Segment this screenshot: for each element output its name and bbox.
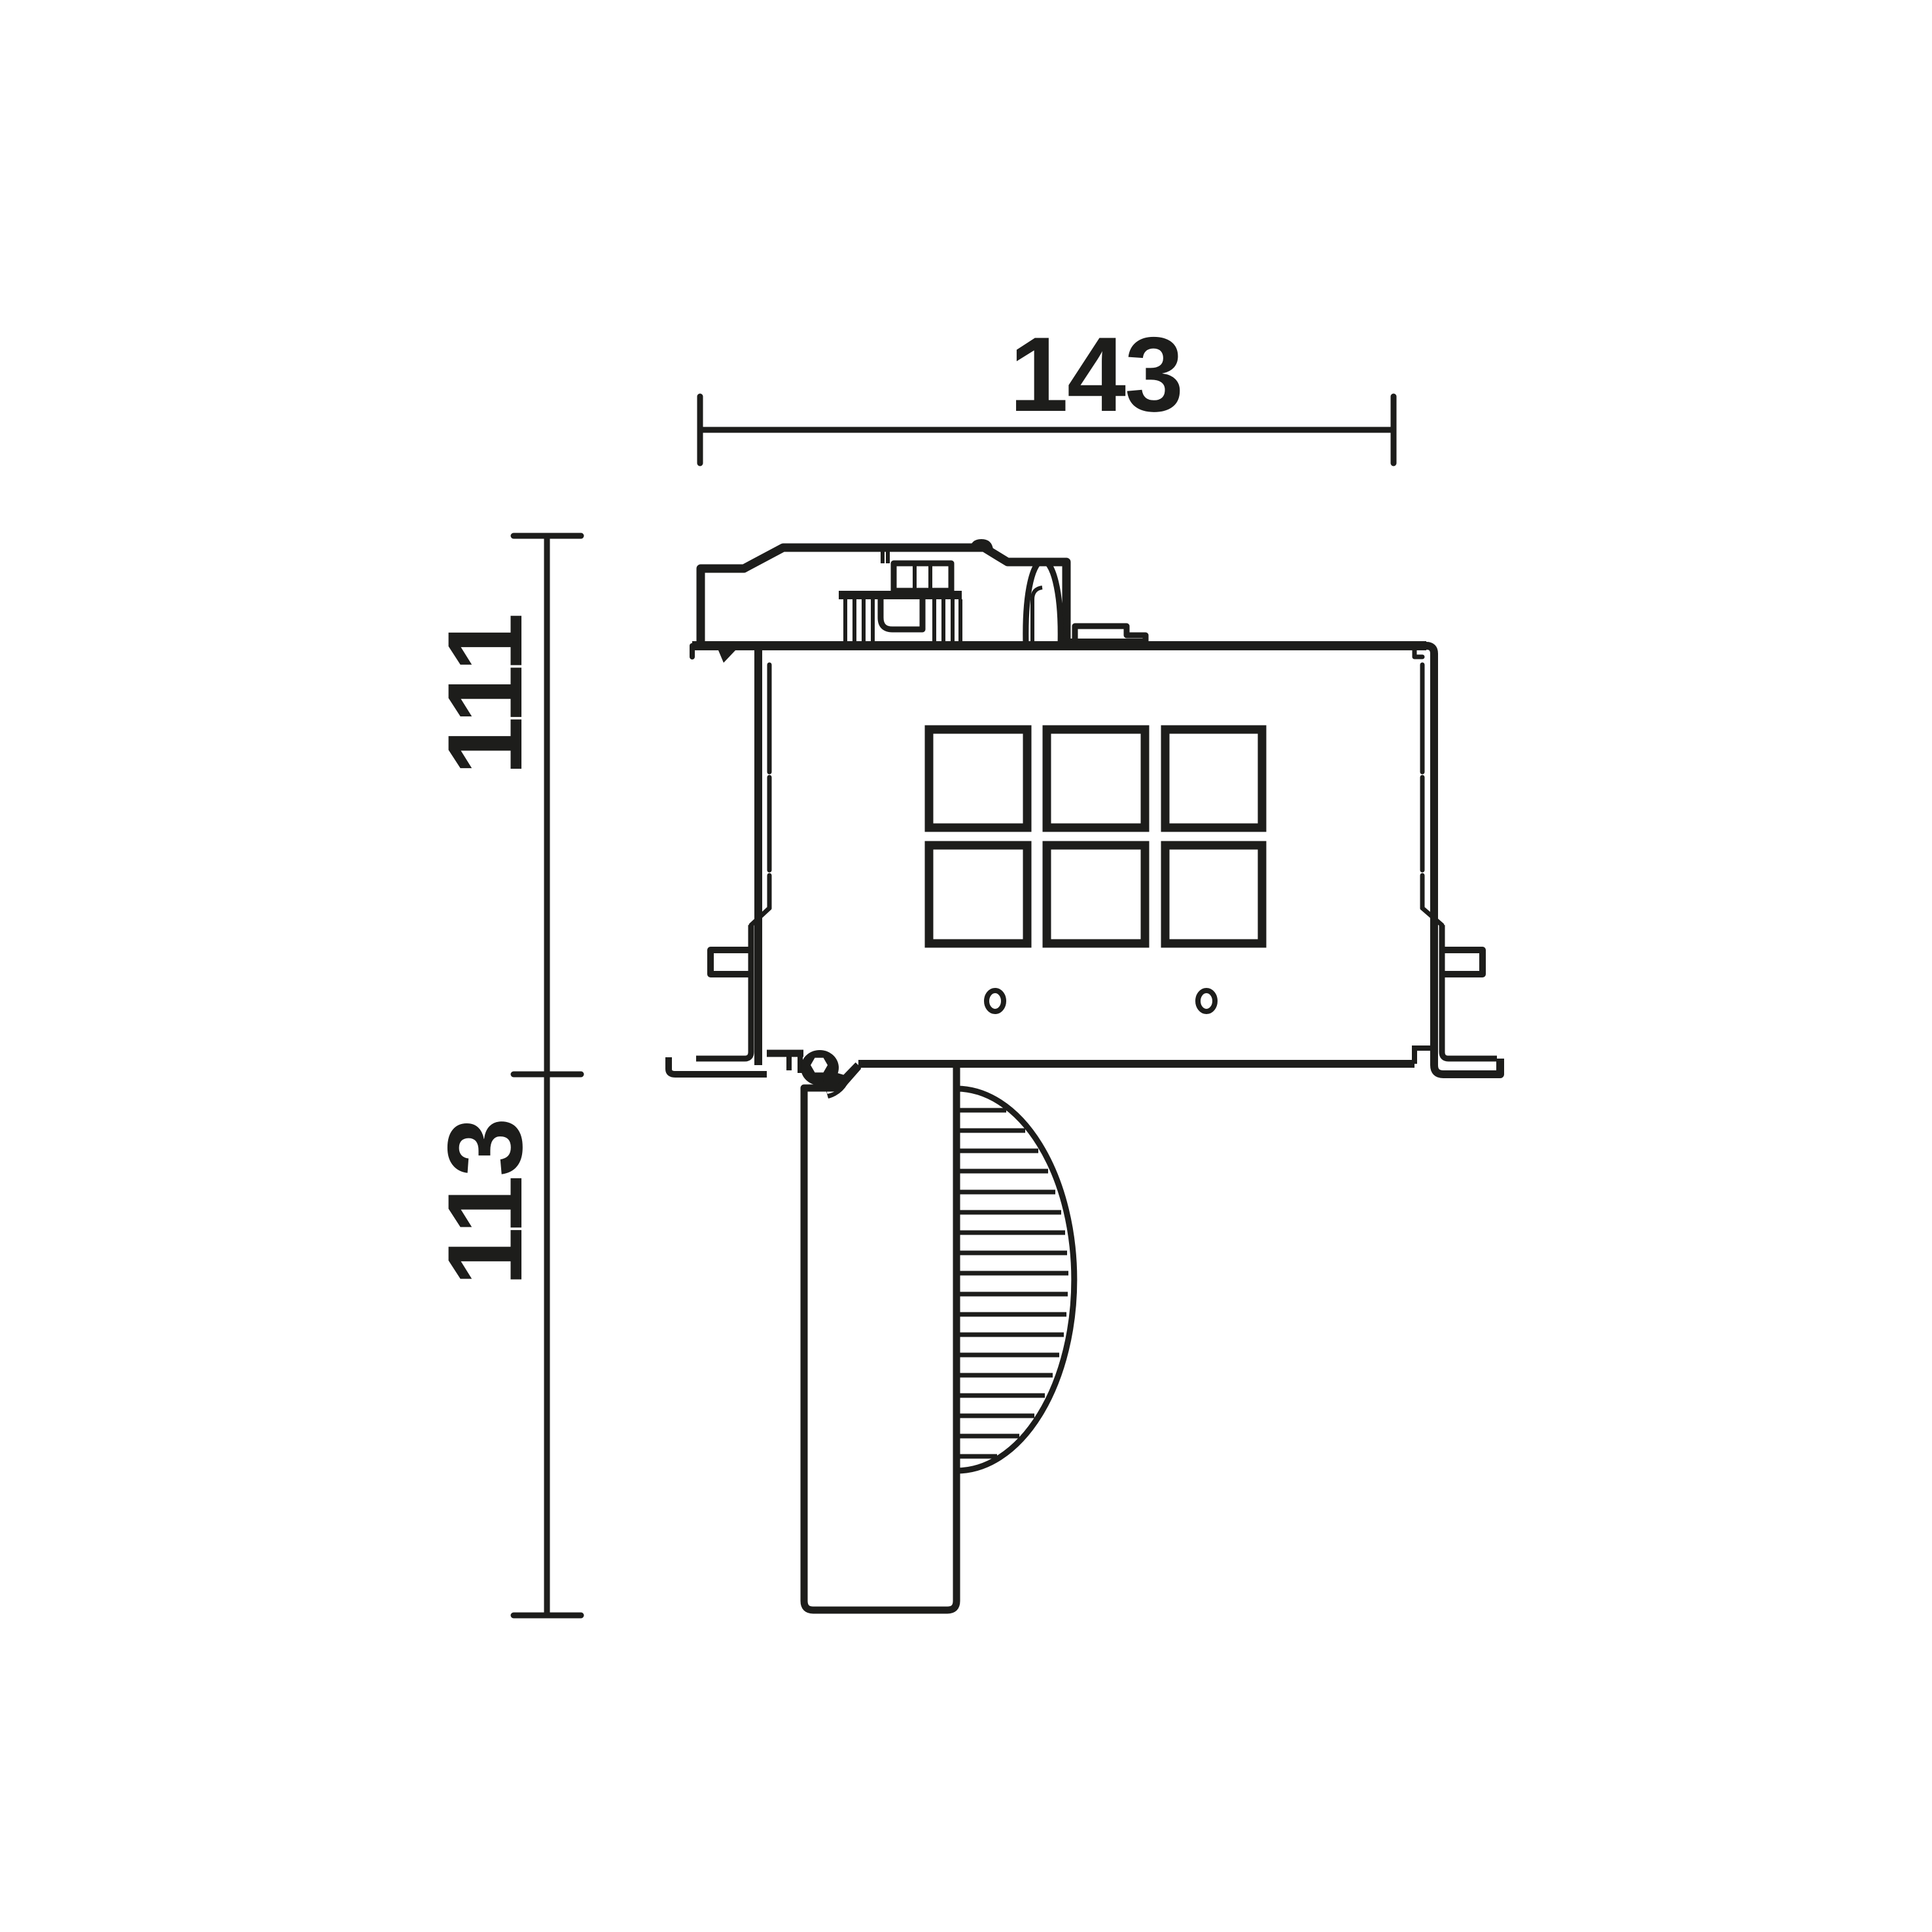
cable-clamp-bump — [970, 539, 993, 550]
vent-square — [1047, 845, 1145, 943]
technical-drawing-page: 143 111 113 — [0, 0, 1932, 1932]
right-wall-outer — [1426, 646, 1500, 1074]
dimension-label-width: 143 — [1010, 315, 1182, 434]
trim-right-step — [1414, 1048, 1430, 1064]
terminal-block — [894, 563, 951, 591]
technical-drawing: 143 111 113 — [0, 0, 1932, 1932]
louver-lens — [957, 1089, 1074, 1471]
lamp-holder-channel — [881, 599, 922, 629]
right-clamp-bracket — [1442, 950, 1483, 974]
dimension-width: 143 — [700, 315, 1394, 463]
vent-square — [1165, 729, 1262, 828]
dimension-label-head-projection: 113 — [426, 1119, 544, 1286]
vent-cutouts — [929, 729, 1262, 1011]
vent-square — [1047, 729, 1145, 828]
vent-square — [929, 845, 1027, 943]
wire-loop-inner — [1032, 588, 1042, 644]
housing-left-wall — [669, 650, 769, 1074]
housing-right-wall — [1414, 646, 1500, 1074]
screw-hole — [987, 991, 1004, 1011]
dimension-label-recess-depth: 111 — [426, 614, 544, 775]
louver-arc — [957, 1089, 1074, 1471]
dimension-heights: 111 113 — [426, 536, 581, 1615]
housing-top-plate — [692, 646, 1426, 663]
lamp-head — [804, 1065, 957, 1610]
vent-square — [1165, 845, 1262, 943]
junction-box — [701, 539, 1147, 646]
transformer-fins — [845, 599, 960, 644]
lamp-head-outline — [804, 1065, 957, 1610]
transformer-bar — [839, 591, 962, 599]
ceiling-trim — [767, 1048, 1430, 1073]
vent-square — [929, 729, 1027, 828]
left-trim-rail — [696, 925, 751, 1059]
screw-hole — [1198, 991, 1215, 1011]
top-plate-left-tab — [718, 650, 735, 663]
right-trim-rail — [1442, 925, 1497, 1059]
left-clamp-bracket — [711, 950, 751, 974]
